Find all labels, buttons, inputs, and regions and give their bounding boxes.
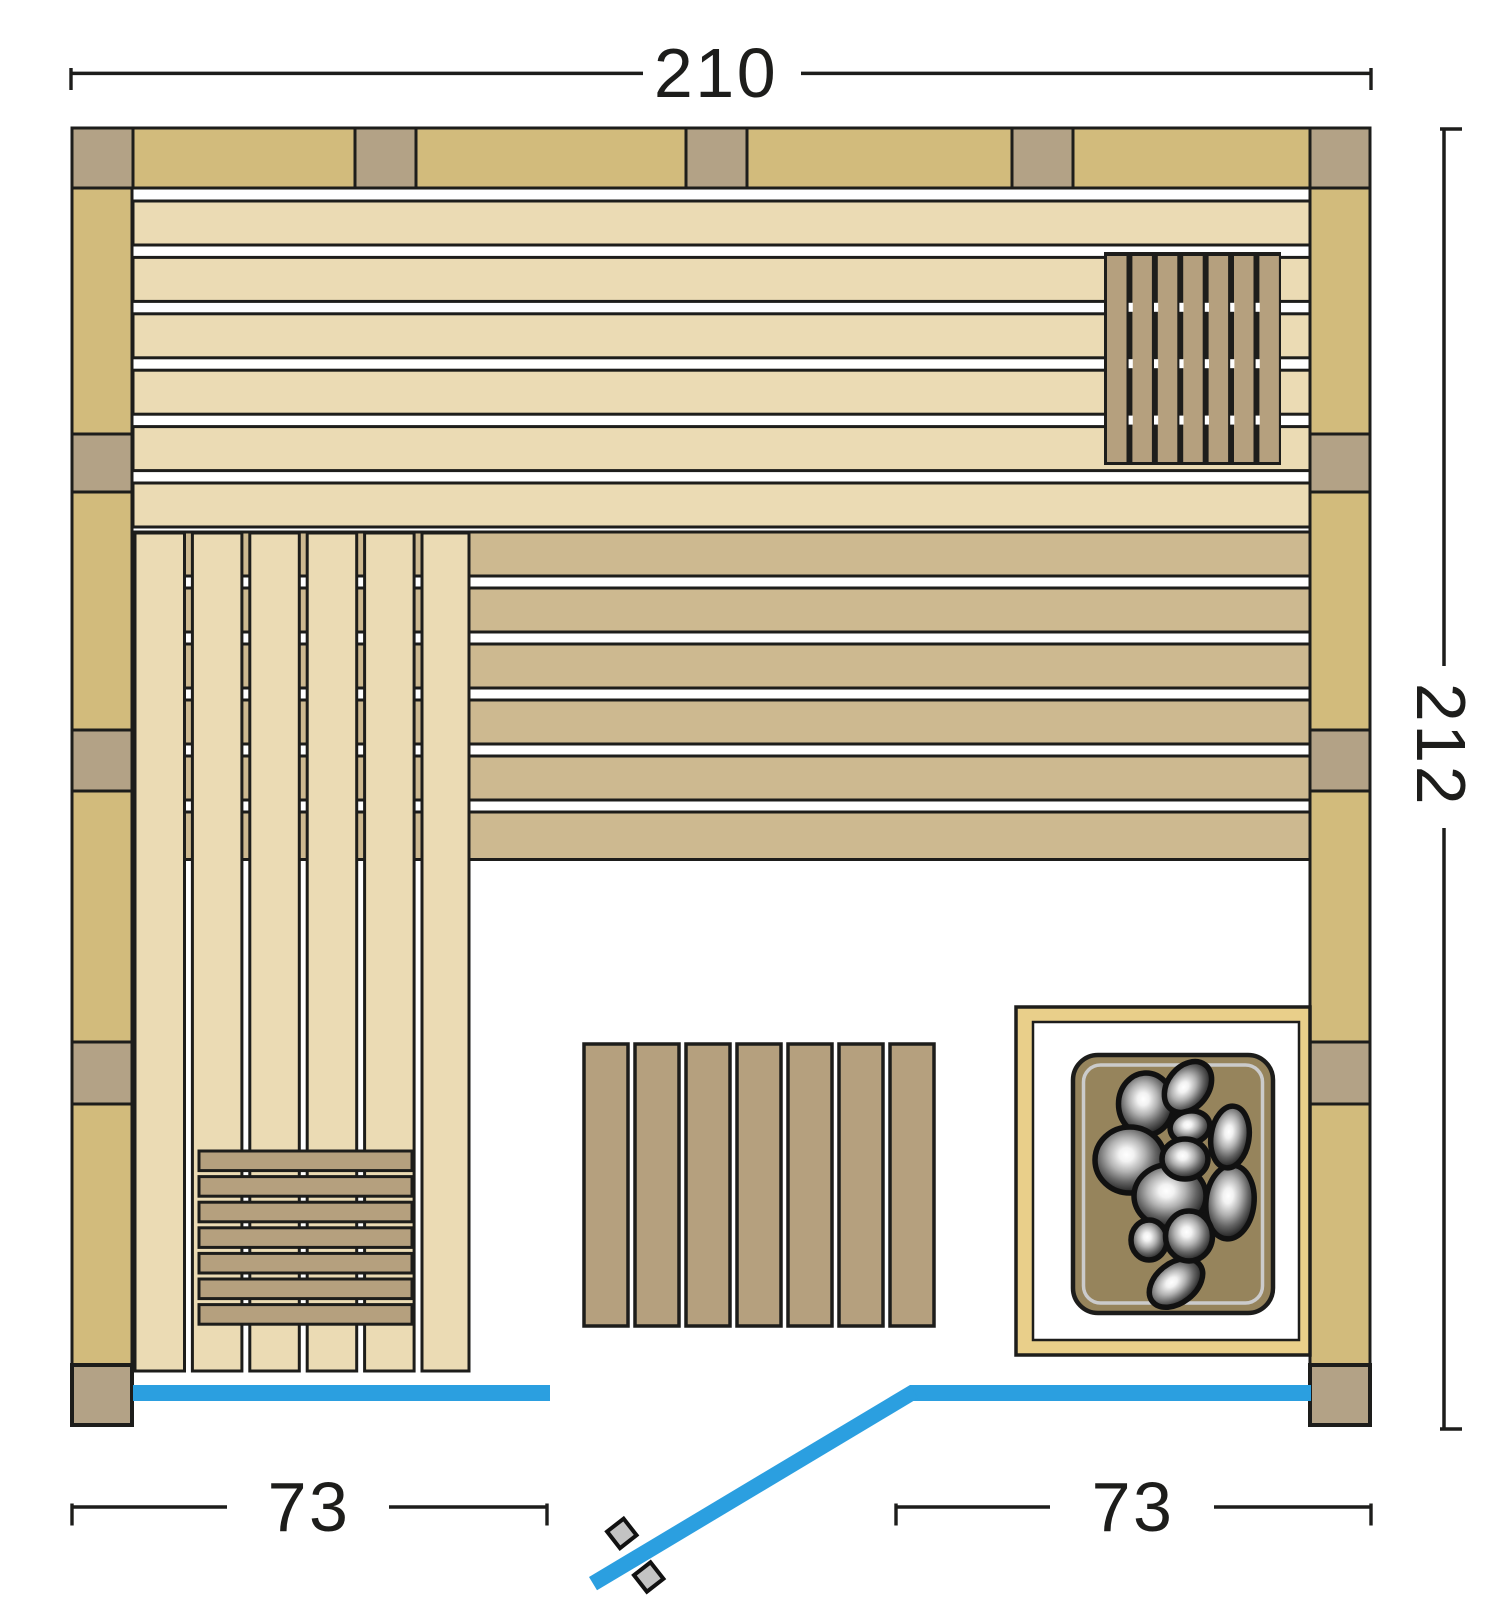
svg-text:212: 212	[1402, 683, 1480, 807]
svg-text:73: 73	[268, 1468, 351, 1546]
svg-text:210: 210	[654, 34, 778, 112]
svg-text:73: 73	[1092, 1468, 1175, 1546]
